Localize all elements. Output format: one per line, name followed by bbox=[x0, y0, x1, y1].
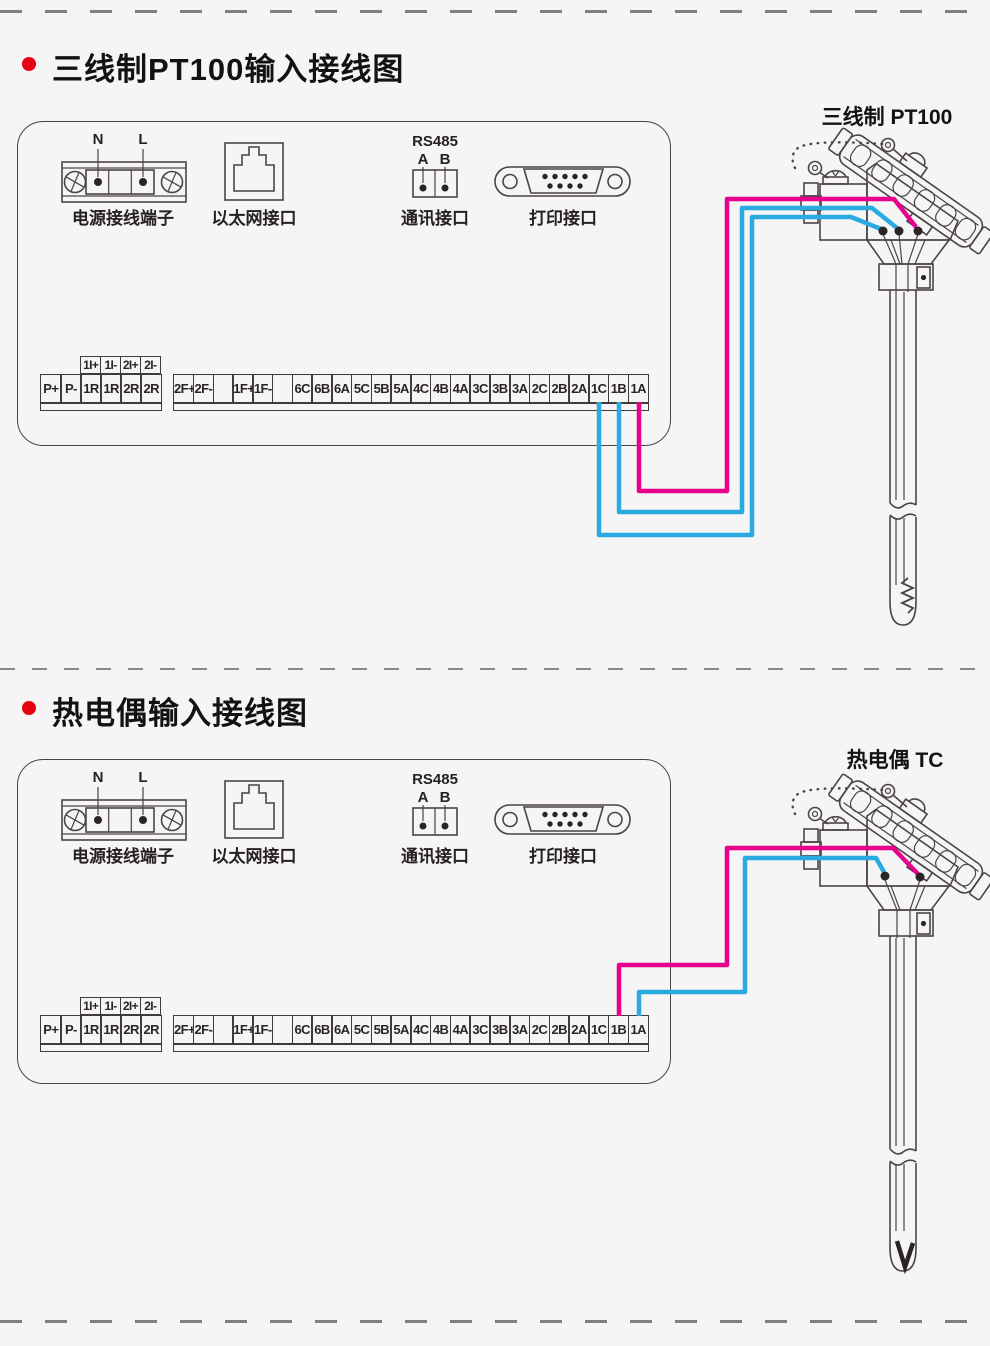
rs485-a-label: A bbox=[413, 789, 433, 806]
terminal-cell: 3C bbox=[469, 1015, 490, 1044]
power-n-label: N bbox=[88, 769, 108, 786]
terminal-row-right: 2F+2F-1F+1F-6C6B6A5C5B5A4C4B4A3C3B3A2C2B… bbox=[173, 1015, 649, 1044]
terminal-cell bbox=[272, 1015, 293, 1044]
terminal-cell: 1F- bbox=[252, 1015, 273, 1044]
section-divider-dashed-line bbox=[0, 668, 990, 670]
ethernet-label: 以太网接口 bbox=[194, 204, 314, 229]
terminal-cell: 3A bbox=[509, 374, 530, 403]
terminal-cell: 2I+ bbox=[120, 356, 141, 374]
terminal-cell: 2A bbox=[568, 1015, 589, 1044]
terminal-substrip bbox=[173, 403, 649, 411]
bullet-icon bbox=[22, 701, 36, 715]
terminal-cell: 2F+ bbox=[173, 374, 194, 403]
terminal-cell: 5A bbox=[390, 374, 411, 403]
terminal-cell: 4A bbox=[450, 1015, 471, 1044]
terminal-cell: 2I+ bbox=[120, 997, 141, 1015]
terminal-row-left: P+P-1R1R2R2R bbox=[40, 1015, 162, 1044]
comm-port-label: 通讯接口 bbox=[375, 204, 495, 229]
terminal-cell: 2A bbox=[568, 374, 589, 403]
terminal-cell: 6C bbox=[292, 1015, 313, 1044]
terminal-cell: 4C bbox=[410, 374, 431, 403]
rs485-title: RS485 bbox=[405, 133, 465, 150]
terminal-cell: 1R bbox=[80, 1015, 102, 1044]
terminal-substrip bbox=[40, 1044, 162, 1052]
power-l-label: L bbox=[133, 769, 153, 786]
terminal-cell: 2C bbox=[529, 374, 550, 403]
terminal-cell: 5B bbox=[371, 1015, 392, 1044]
terminal-cell: 5B bbox=[371, 374, 392, 403]
terminal-cell: 1A bbox=[628, 374, 649, 403]
terminal-cell: 5C bbox=[351, 1015, 372, 1044]
rs485-a-label: A bbox=[413, 151, 433, 168]
terminal-cell: 6A bbox=[331, 374, 352, 403]
manual-page: { "colors": { "accent_red": "#e60012", "… bbox=[0, 0, 990, 1346]
terminal-row-aux: 1I+1I-2I+2I- bbox=[80, 997, 161, 1015]
terminal-cell: 1B bbox=[608, 1015, 629, 1044]
terminal-cell: 3B bbox=[489, 374, 510, 403]
page-top-dashed-line bbox=[0, 10, 990, 13]
terminal-cell: 5C bbox=[351, 374, 372, 403]
page-bottom-dashed-line bbox=[0, 1320, 990, 1323]
terminal-row-left: P+P-1R1R2R2R bbox=[40, 374, 162, 403]
terminal-cell: 2F- bbox=[193, 1015, 214, 1044]
tc-junction-icon bbox=[897, 1241, 913, 1267]
terminal-cell: 4B bbox=[430, 1015, 451, 1044]
section-title-tc: 热电偶输入接线图 bbox=[52, 688, 308, 733]
terminal-cell: 2F+ bbox=[173, 1015, 194, 1044]
terminal-cell: 1I+ bbox=[80, 997, 101, 1015]
terminal-cell: 1R bbox=[100, 374, 122, 403]
terminal-cell: 2I- bbox=[140, 997, 161, 1015]
terminal-row-right: 2F+2F-1F+1F-6C6B6A5C5B5A4C4B4A3C3B3A2C2B… bbox=[173, 374, 649, 403]
comm-port-label: 通讯接口 bbox=[375, 842, 495, 867]
terminal-cell: 2B bbox=[549, 1015, 570, 1044]
terminal-cell: P+ bbox=[40, 374, 62, 403]
wire-blue-1a bbox=[639, 858, 884, 1016]
terminal-row-aux: 1I+1I-2I+2I- bbox=[80, 356, 161, 374]
bullet-icon bbox=[22, 57, 36, 71]
terminal-cell: 2B bbox=[549, 374, 570, 403]
terminal-cell: 1F+ bbox=[232, 374, 253, 403]
sensor-label-tc: 热电偶 TC bbox=[800, 744, 990, 774]
head-conductors bbox=[883, 234, 918, 292]
terminal-cell: 4B bbox=[430, 374, 451, 403]
power-terminal-label: 电源接线端子 bbox=[48, 842, 198, 867]
terminal-cell: 1A bbox=[628, 1015, 649, 1044]
rs485-title: RS485 bbox=[405, 771, 465, 788]
terminal-cell: P+ bbox=[40, 1015, 62, 1044]
head-conductors bbox=[885, 880, 920, 938]
pt100-element-icon bbox=[902, 578, 913, 613]
terminal-cell: 4A bbox=[450, 374, 471, 403]
terminal-cell: 1I+ bbox=[80, 356, 101, 374]
terminal-cell: 3C bbox=[469, 374, 490, 403]
terminal-cell: 6A bbox=[331, 1015, 352, 1044]
terminal-cell: 1I- bbox=[100, 997, 121, 1015]
print-port-label: 打印接口 bbox=[503, 842, 623, 867]
terminal-cell: 6C bbox=[292, 374, 313, 403]
rs485-b-label: B bbox=[435, 151, 455, 168]
print-port-label: 打印接口 bbox=[503, 204, 623, 229]
terminal-cell: 1F- bbox=[252, 374, 273, 403]
power-n-label: N bbox=[88, 131, 108, 148]
terminal-cell: 2F- bbox=[193, 374, 214, 403]
power-l-label: L bbox=[133, 131, 153, 148]
terminal-cell: 2R bbox=[120, 374, 142, 403]
terminal-cell: 2R bbox=[120, 1015, 142, 1044]
terminal-cell: 1C bbox=[588, 1015, 609, 1044]
wire-pink-1a bbox=[639, 199, 916, 491]
terminal-cell: 2R bbox=[140, 374, 162, 403]
terminal-cell: 3A bbox=[509, 1015, 530, 1044]
sensor-label-pt100: 三线制 PT100 bbox=[792, 101, 982, 131]
terminal-cell: 3B bbox=[489, 1015, 510, 1044]
terminal-cell: P- bbox=[60, 374, 82, 403]
terminal-cell: 2C bbox=[529, 1015, 550, 1044]
terminal-cell: 6B bbox=[311, 1015, 332, 1044]
sensor-terminal-dots bbox=[879, 227, 925, 882]
terminal-cell bbox=[213, 374, 234, 403]
terminal-cell: 2I- bbox=[140, 356, 161, 374]
terminal-substrip bbox=[40, 403, 162, 411]
terminal-cell: 1I- bbox=[100, 356, 121, 374]
terminal-cell bbox=[213, 1015, 234, 1044]
terminal-cell: 1F+ bbox=[232, 1015, 253, 1044]
terminal-cell: 4C bbox=[410, 1015, 431, 1044]
terminal-cell: 1R bbox=[100, 1015, 122, 1044]
power-terminal-label: 电源接线端子 bbox=[48, 204, 198, 229]
terminal-cell: 1R bbox=[80, 374, 102, 403]
terminal-cell: 5A bbox=[390, 1015, 411, 1044]
terminal-cell: 2R bbox=[140, 1015, 162, 1044]
terminal-cell: P- bbox=[60, 1015, 82, 1044]
rs485-b-label: B bbox=[435, 789, 455, 806]
terminal-cell: 1B bbox=[608, 374, 629, 403]
terminal-substrip bbox=[173, 1044, 649, 1052]
terminal-cell bbox=[272, 374, 293, 403]
terminal-cell: 6B bbox=[311, 374, 332, 403]
section-title-pt100: 三线制PT100输入接线图 bbox=[52, 44, 404, 89]
ethernet-label: 以太网接口 bbox=[194, 842, 314, 867]
terminal-cell: 1C bbox=[588, 374, 609, 403]
